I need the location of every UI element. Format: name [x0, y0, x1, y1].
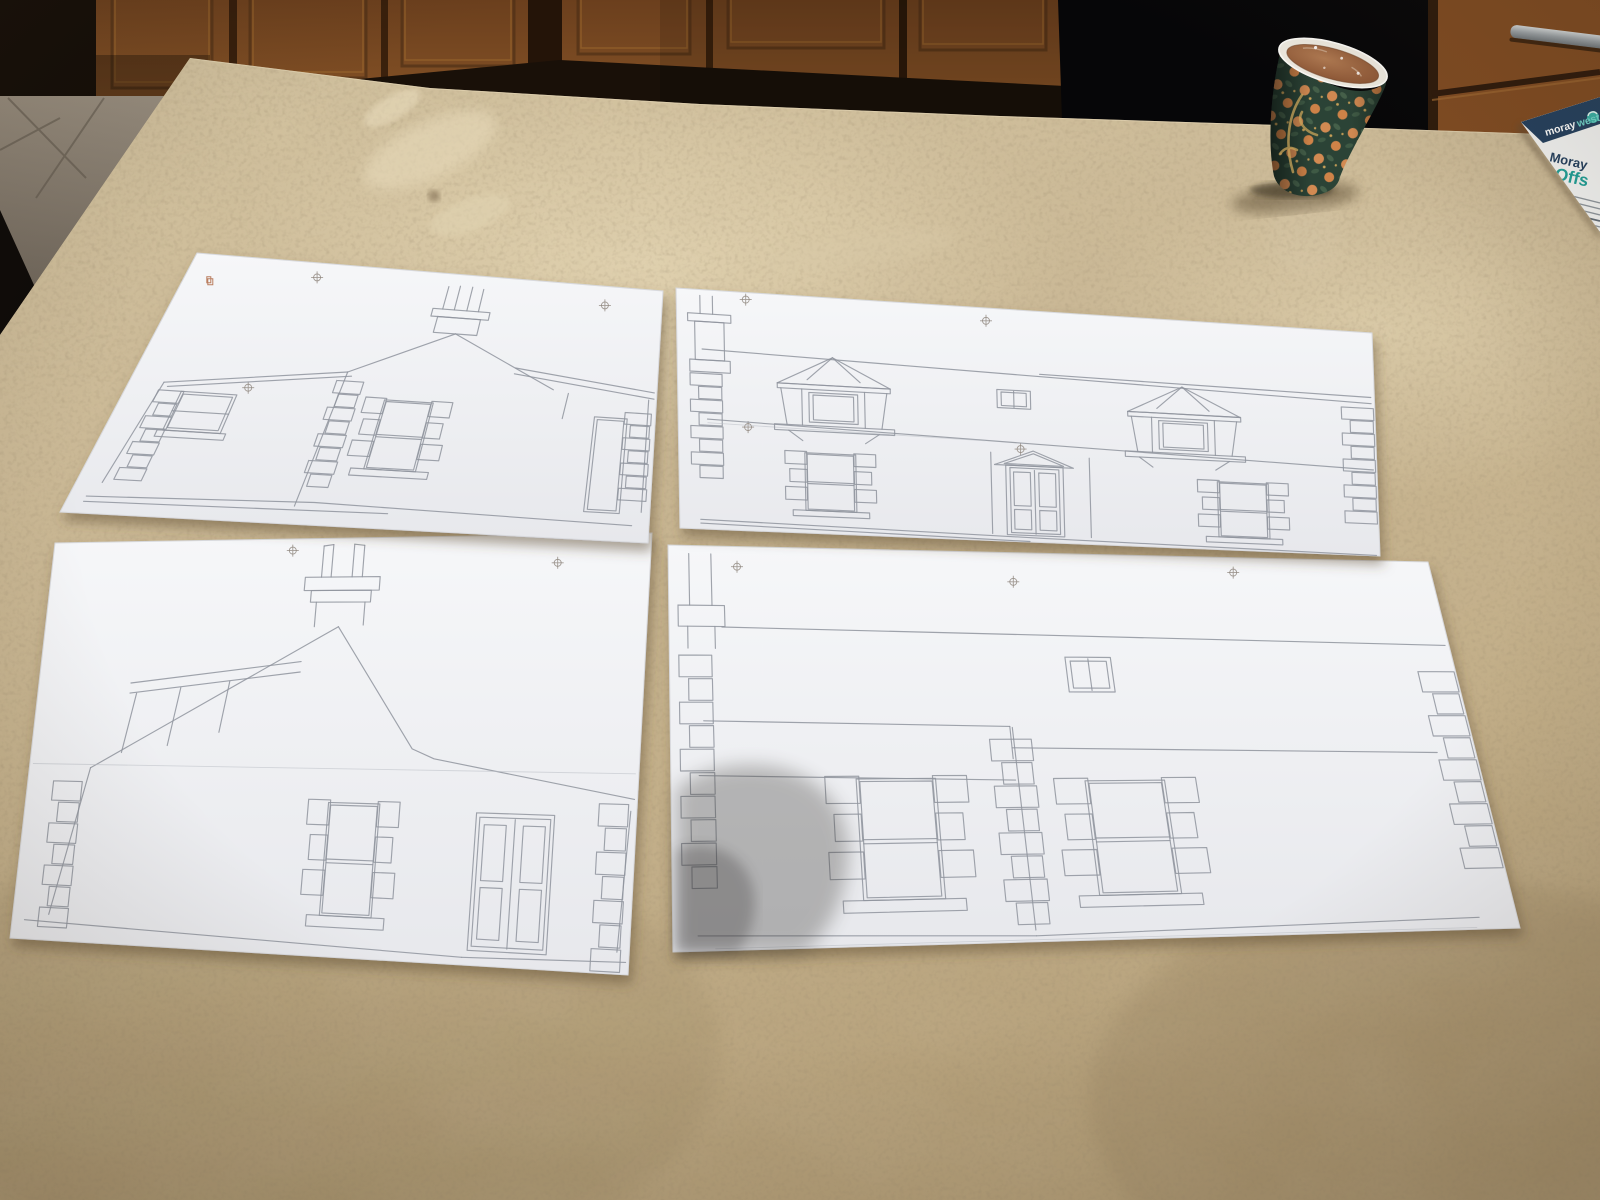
- kitchen-scene: moray west Moray Offs: [0, 0, 1600, 1200]
- photo-kitchen-worktop-plans: moray west Moray Offs: [0, 0, 1600, 1200]
- vignette: [0, 0, 1600, 1200]
